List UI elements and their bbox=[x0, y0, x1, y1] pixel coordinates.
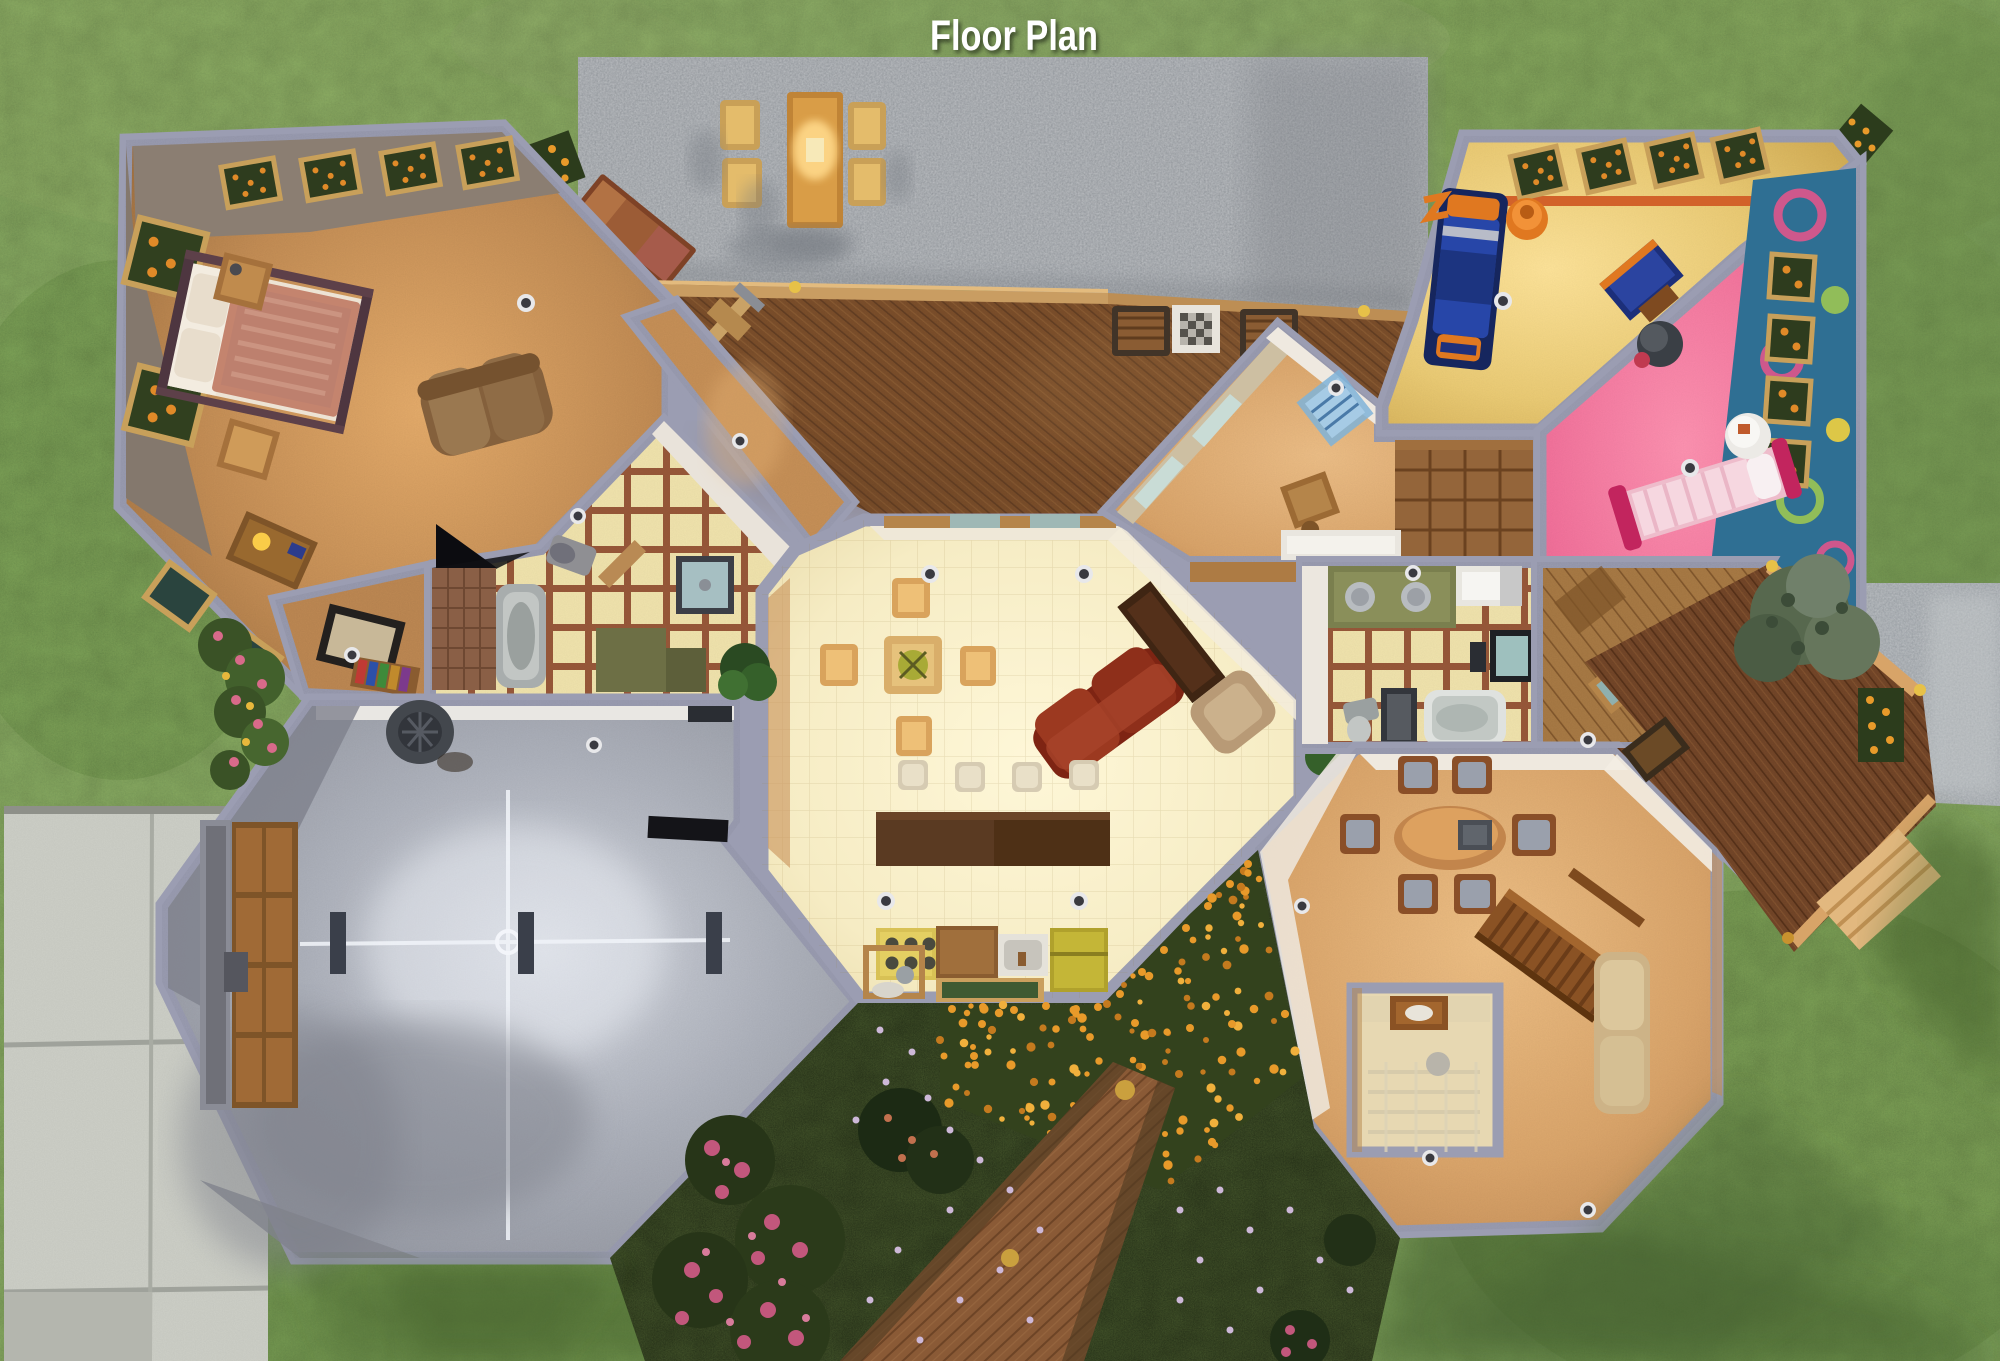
svg-text:Floor Plan: Floor Plan bbox=[930, 12, 1098, 60]
